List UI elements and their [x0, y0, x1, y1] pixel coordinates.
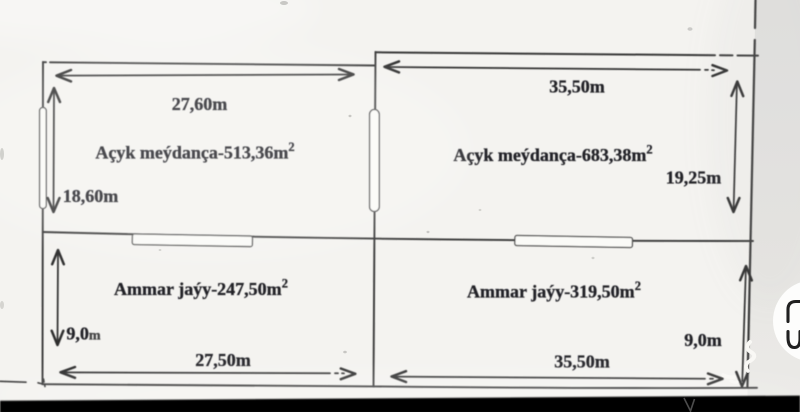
svg-text:27,50m: 27,50m — [195, 350, 251, 370]
svg-text:Ammar jaýy-319,50m2: Ammar jaýy-319,50m2 — [467, 279, 641, 302]
svg-text:Ammar jaýy-247,50m2: Ammar jaýy-247,50m2 — [114, 277, 288, 300]
svg-text:9,0m: 9,0m — [684, 330, 722, 350]
svg-text:35,50m: 35,50m — [549, 77, 605, 97]
svg-text:Açyk meýdança-683,38m2: Açyk meýdança-683,38m2 — [453, 143, 652, 166]
svg-text:35,50m: 35,50m — [554, 352, 610, 372]
